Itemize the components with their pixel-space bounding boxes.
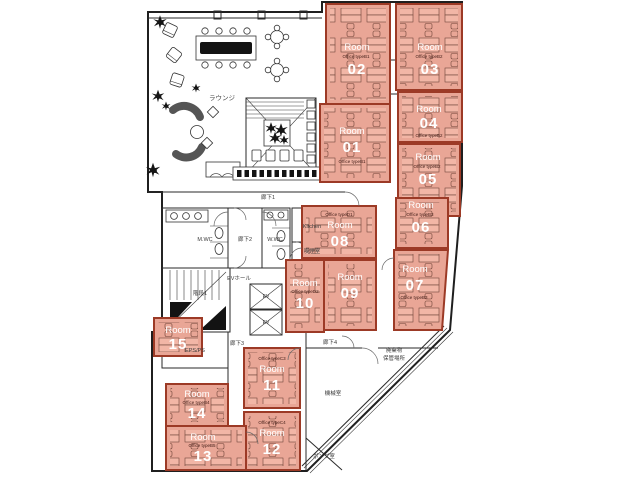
room-type: Office typeB3 (407, 212, 434, 217)
room-09: Room 09 (324, 260, 376, 330)
room-number: 10 (296, 295, 315, 312)
room-label: Room (339, 126, 364, 137)
corridor1-label: 廊下1 (261, 193, 275, 201)
machine-room-label: 機械室 (325, 389, 342, 397)
elevators: EV EV (250, 284, 282, 335)
room-number: 01 (343, 139, 362, 156)
stairs1-label: 階段1 (193, 289, 207, 297)
elevator-hall-label: EVホール (227, 275, 251, 282)
elevator-label: EV (263, 294, 270, 300)
room-12: Office typeC4 Room 12 (244, 412, 300, 470)
room-number: 03 (421, 61, 440, 78)
waste-storage-label-line2: 保管場所 (383, 354, 406, 362)
lounge-label: ラウンジ (209, 94, 236, 102)
room-number: 02 (348, 61, 367, 78)
curved-sofa (173, 106, 200, 117)
waste-storage-label-line1: 廃棄物 (386, 346, 403, 354)
diagonal-wall-line (304, 328, 447, 468)
room-label: Room (165, 325, 190, 336)
corridor2-label: 廊下2 (238, 235, 252, 243)
room-number: 09 (341, 285, 360, 302)
room-06: Room Office typeB3 06 (396, 198, 448, 248)
room-number: 04 (420, 115, 439, 132)
womens-wc-label: W.WC (267, 237, 283, 243)
room-number: 05 (419, 171, 438, 188)
kitchen-label: Kitchen (303, 224, 321, 230)
smoking-room-label: 喫煙室 (304, 247, 321, 255)
floor-plan-page: EV EV (0, 0, 640, 480)
diagonal-wall-line (302, 326, 444, 466)
room-label: Room (344, 42, 369, 53)
room-number: 08 (331, 233, 350, 250)
room-label: Room (259, 428, 284, 439)
room-14: Room Office typeB4 14 (166, 384, 228, 426)
curved-sofa (176, 147, 202, 157)
grand-stair (233, 98, 322, 180)
room-number: 14 (188, 405, 207, 422)
diagonal-wall-line (310, 332, 453, 473)
room-label: Room (415, 152, 440, 163)
room-type: Office typeB2 (414, 164, 441, 169)
room-label: Room (408, 200, 433, 211)
room-07: Room 07 Office typeB3 (394, 250, 448, 330)
room-label: Room (184, 389, 209, 400)
room-type: Office typeC3 (258, 356, 286, 361)
room-type: Office typeC4 (258, 420, 286, 425)
room-type: Office typeB1 (339, 159, 366, 164)
room-number: 11 (263, 377, 281, 394)
room-label: Room (417, 42, 442, 53)
room-04: Room 04 Office typeB2 (398, 92, 462, 142)
corridor3-label: 廊下3 (230, 339, 244, 347)
round-table (271, 31, 284, 44)
room-10: Room Office typeD2 10 (286, 260, 324, 332)
room-label: Room (402, 264, 427, 275)
mens-wc-label: M.WC (197, 237, 212, 243)
counter-stools (237, 170, 317, 177)
room-label: Room (190, 432, 215, 443)
room-type: Office typeD1 (325, 212, 353, 217)
room-11: Office typeC3 Room 11 (244, 348, 300, 408)
room-label: Room (327, 220, 352, 231)
room-13: Room Office typeB5 13 (166, 426, 246, 470)
room-01: Room 01 Office typeB1 (320, 104, 390, 182)
room-number: 12 (263, 441, 282, 458)
room-label: Room (292, 278, 317, 289)
pump-room-label: ポンプ室 (313, 452, 335, 460)
floor-plan-svg: EV EV (0, 0, 640, 480)
room-type: Office typeB3 (401, 295, 428, 300)
room-type: Office typeD2 (291, 289, 319, 294)
room-type: Office typeB2 (416, 133, 443, 138)
eps-ps-label: EPS/PS (185, 348, 205, 354)
room-type: Office typeB2 (416, 54, 443, 59)
room-label: Room (416, 104, 441, 115)
room-label: Room (337, 272, 362, 283)
corridor4-label: 廊下4 (323, 338, 337, 346)
room-02: Room Office typeB1 02 (326, 4, 390, 104)
round-table (271, 64, 284, 77)
room-type: Office typeB1 (343, 54, 370, 59)
room-03: Room Office typeB2 03 (396, 4, 462, 90)
room-number: 13 (194, 448, 213, 465)
room-number: 06 (412, 219, 431, 236)
elevator-label: EV (263, 320, 270, 326)
room-label: Room (259, 364, 284, 375)
room-number: 07 (406, 277, 425, 294)
